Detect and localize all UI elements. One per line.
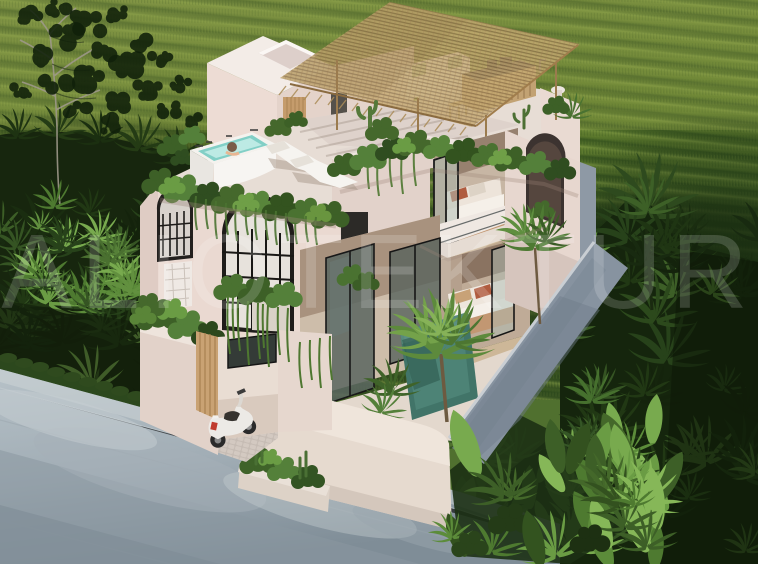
svg-text:ALIOTEKTUR: ALIOTEKTUR (1, 213, 757, 331)
